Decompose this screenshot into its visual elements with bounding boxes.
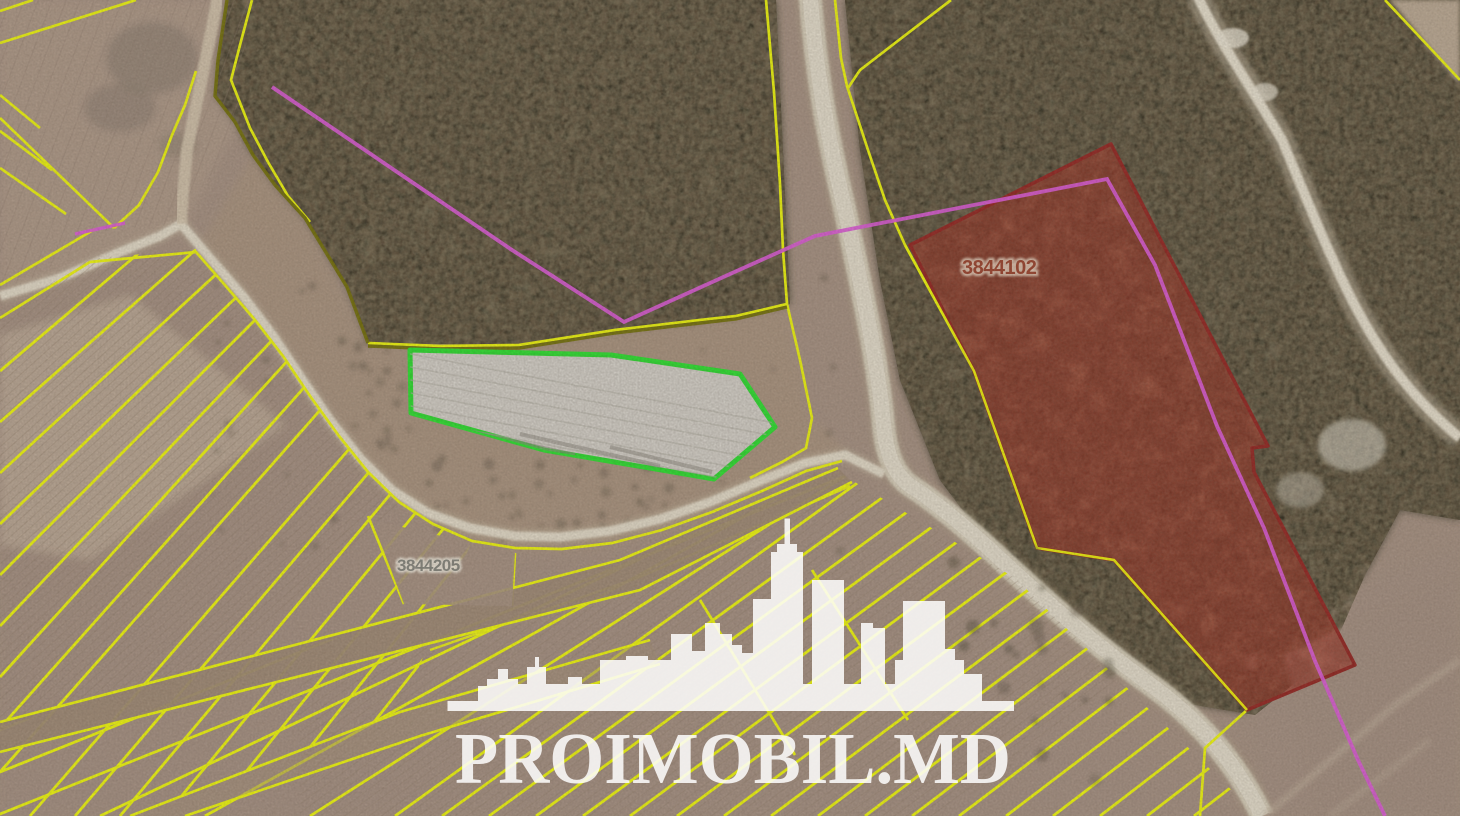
svg-text:PROIMOBIL.MD: PROIMOBIL.MD [455, 718, 1011, 799]
